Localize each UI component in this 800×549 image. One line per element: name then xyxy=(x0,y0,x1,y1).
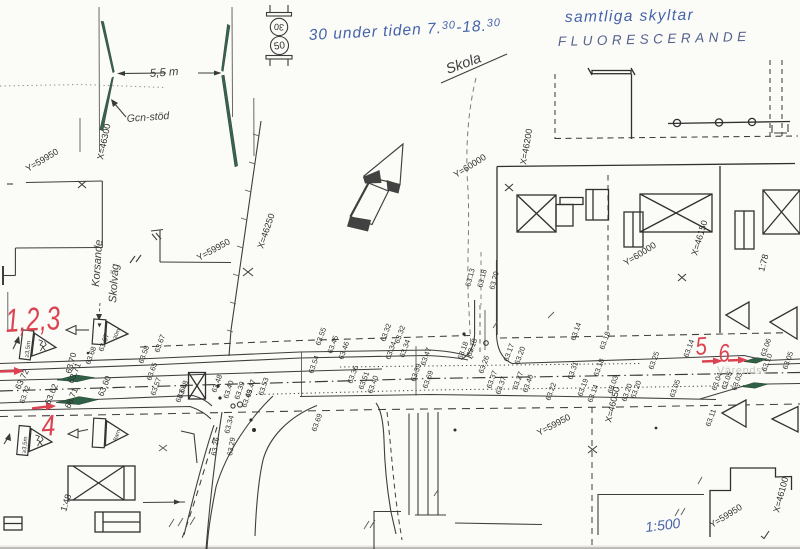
svg-text:30: 30 xyxy=(274,22,285,33)
svg-text:4: 4 xyxy=(40,408,56,442)
svg-text:5,5 m: 5,5 m xyxy=(149,66,179,80)
svg-text:6: 6 xyxy=(717,338,731,367)
svg-text:50: 50 xyxy=(273,40,286,53)
svg-text:5: 5 xyxy=(694,331,708,360)
svg-text:1,2,3: 1,2,3 xyxy=(5,301,62,340)
svg-text:samtliga skyltar: samtliga skyltar xyxy=(565,7,694,26)
